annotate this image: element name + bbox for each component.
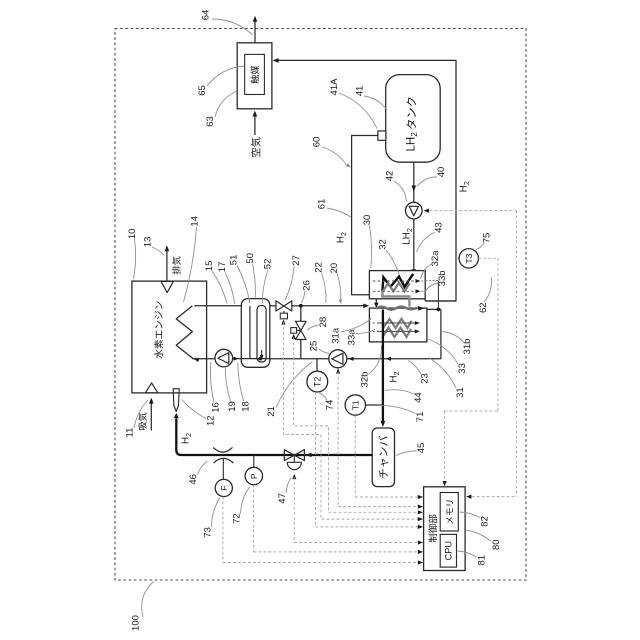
svg-text:40: 40 [436,167,447,178]
svg-text:22: 22 [314,262,325,273]
svg-text:33b: 33b [437,270,448,286]
svg-text:12: 12 [206,415,217,426]
svg-text:18: 18 [240,401,251,412]
svg-text:28: 28 [318,317,329,328]
svg-text:51: 51 [229,255,240,266]
svg-text:52: 52 [263,259,274,270]
svg-text:27: 27 [291,255,302,266]
svg-text:100: 100 [131,615,142,631]
svg-text:17: 17 [217,262,228,273]
svg-text:33: 33 [457,363,468,374]
svg-text:42: 42 [385,171,396,182]
svg-text:32a: 32a [430,250,441,267]
svg-text:73: 73 [203,527,214,538]
svg-text:82: 82 [480,516,491,527]
svg-text:21: 21 [266,406,277,417]
svg-text:30: 30 [362,215,373,226]
svg-text:47: 47 [277,493,288,504]
svg-text:T3: T3 [464,253,474,263]
svg-text:11: 11 [124,428,135,438]
svg-text:10: 10 [127,229,138,240]
svg-text:23: 23 [419,373,430,384]
svg-text:26: 26 [301,280,312,291]
svg-text:32: 32 [378,239,389,250]
svg-text:19: 19 [227,401,238,412]
svg-text:81: 81 [476,555,487,566]
svg-text:15: 15 [204,261,215,272]
svg-text:T1: T1 [350,400,360,410]
svg-text:72: 72 [232,513,243,524]
svg-text:F: F [219,486,229,491]
svg-text:31a: 31a [331,327,342,344]
svg-text:71: 71 [415,412,426,423]
svg-text:44: 44 [413,392,424,403]
svg-text:CPU: CPU [443,541,453,560]
svg-text:16: 16 [210,402,221,413]
svg-text:50: 50 [245,253,256,264]
svg-text:31: 31 [455,387,466,398]
svg-text:65: 65 [197,85,208,96]
svg-text:13: 13 [143,237,154,248]
svg-text:P: P [249,473,259,479]
svg-text:63: 63 [205,116,216,127]
svg-text:74: 74 [324,400,335,411]
svg-text:20: 20 [329,263,340,274]
svg-text:46: 46 [188,474,199,485]
svg-text:61: 61 [317,199,328,210]
svg-text:62: 62 [478,302,489,313]
svg-text:25: 25 [309,341,320,352]
svg-text:T2: T2 [312,377,322,387]
svg-text:60: 60 [312,137,323,148]
svg-text:45: 45 [416,443,427,454]
svg-text:41: 41 [355,86,366,97]
svg-text:43: 43 [434,222,445,233]
svg-text:41A: 41A [329,78,340,96]
svg-text:64: 64 [201,10,212,21]
svg-text:31b: 31b [462,339,473,355]
svg-text:75: 75 [482,233,493,244]
svg-text:33a: 33a [347,329,358,346]
svg-text:14: 14 [190,216,201,227]
svg-text:80: 80 [491,539,502,550]
